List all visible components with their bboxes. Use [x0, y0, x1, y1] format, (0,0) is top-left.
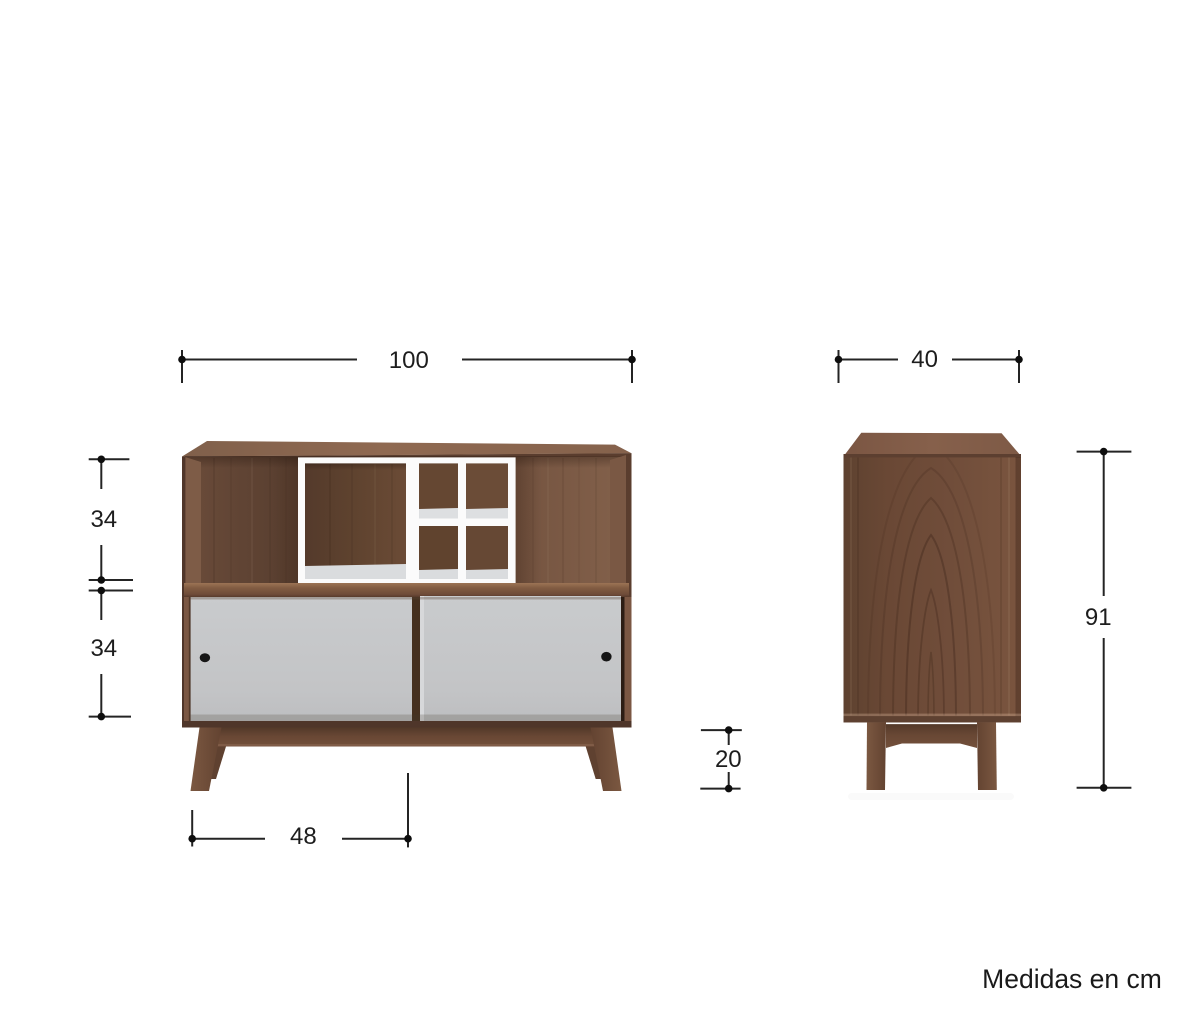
- svg-text:34: 34: [90, 635, 117, 662]
- svg-text:Medidas en cm: Medidas en cm: [982, 964, 1162, 994]
- svg-text:48: 48: [290, 823, 317, 850]
- svg-text:34: 34: [90, 506, 117, 533]
- svg-text:20: 20: [715, 746, 742, 773]
- svg-text:91: 91: [1085, 604, 1112, 631]
- svg-text:40: 40: [911, 346, 938, 373]
- svg-text:100: 100: [389, 347, 429, 374]
